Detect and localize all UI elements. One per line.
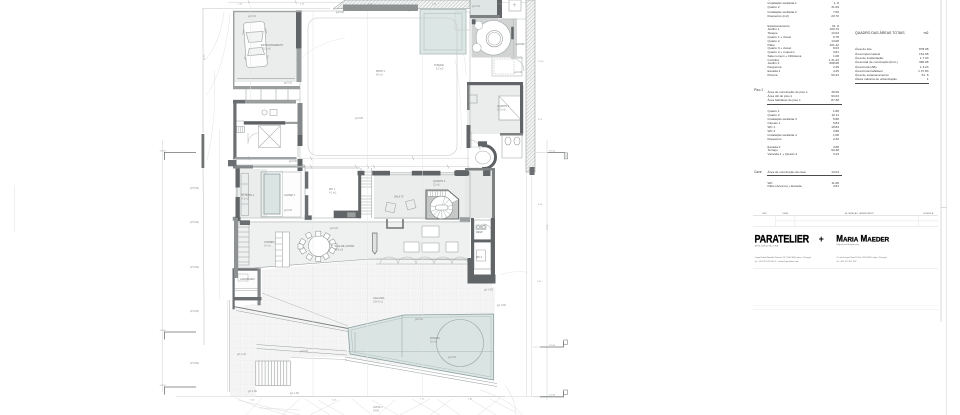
svg-text:PARATELIER: PARATELIER — [755, 233, 810, 245]
svg-text:MARIA MAEDER: MARIA MAEDER — [836, 233, 889, 243]
svg-text:RUBRICA: RUBRICA — [924, 212, 934, 215]
svg-text:ARTE & ARQUITECTURA: ARTE & ARQUITECTURA — [755, 244, 779, 247]
svg-text:REV: REV — [763, 213, 768, 215]
svg-text:DATA: DATA — [783, 212, 789, 215]
svg-text:Engenharia/Engineering: Engenharia/Engineering — [837, 243, 860, 246]
svg-text:tel. +351 213 470 801 1 - atel: tel. +351 213 470 801 1 - atelier@parate… — [755, 260, 799, 263]
svg-text:Largo Rafael Bordalo Pinheiro: Largo Rafael Bordalo Pinheiro 29, 1200-3… — [755, 256, 812, 259]
svg-text:tel. +351 213 471 202: tel. +351 213 471 202 — [837, 260, 858, 263]
svg-text:+: + — [819, 234, 824, 244]
svg-text:ALTERAÇÃO / AMENDMENT: ALTERAÇÃO / AMENDMENT — [845, 212, 875, 215]
svg-text:Pr. do Principe Real 23 1dt, 1: Pr. do Principe Real 23 1dt, 1250-096 Li… — [837, 256, 888, 259]
